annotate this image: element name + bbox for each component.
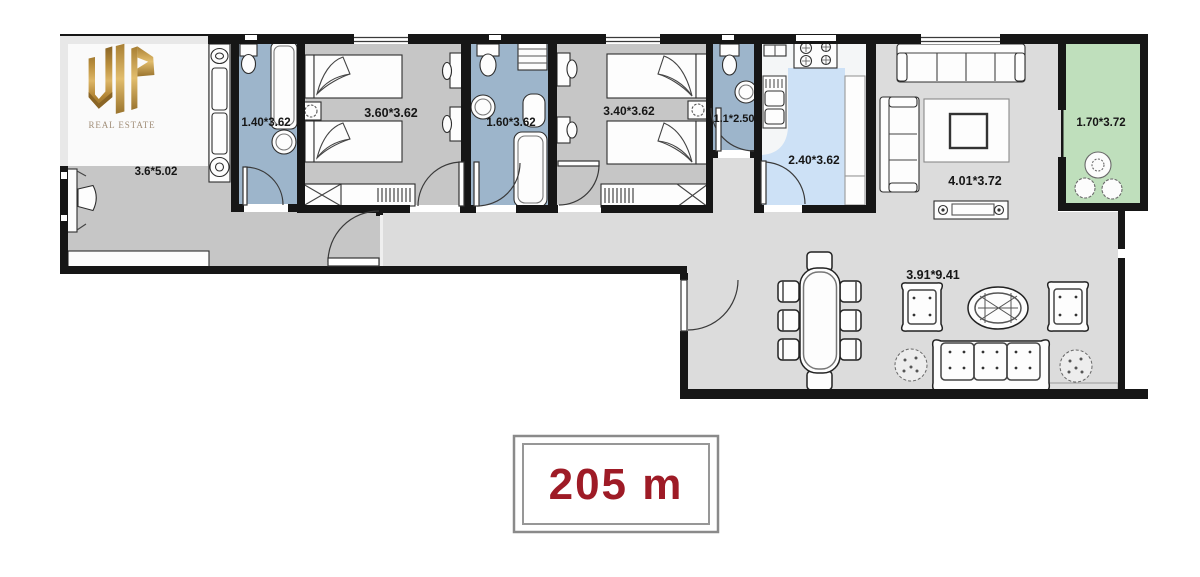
svg-text:2.40*3.62: 2.40*3.62 <box>788 153 840 167</box>
svg-text:1.1*2.50: 1.1*2.50 <box>714 113 755 125</box>
svg-text:4.01*3.72: 4.01*3.72 <box>948 174 1002 188</box>
svg-text:1.60*3.62: 1.60*3.62 <box>486 117 535 129</box>
svg-text:3.91*9.41: 3.91*9.41 <box>906 268 960 282</box>
svg-text:205 m: 205 m <box>549 460 684 509</box>
svg-text:REAL ESTATE: REAL ESTATE <box>88 120 155 130</box>
svg-text:3.40*3.62: 3.40*3.62 <box>603 104 655 118</box>
svg-text:3.6*5.02: 3.6*5.02 <box>135 166 178 178</box>
svg-text:1.40*3.62: 1.40*3.62 <box>241 117 290 129</box>
svg-text:3.60*3.62: 3.60*3.62 <box>364 106 418 120</box>
svg-text:1.70*3.72: 1.70*3.72 <box>1076 117 1125 129</box>
